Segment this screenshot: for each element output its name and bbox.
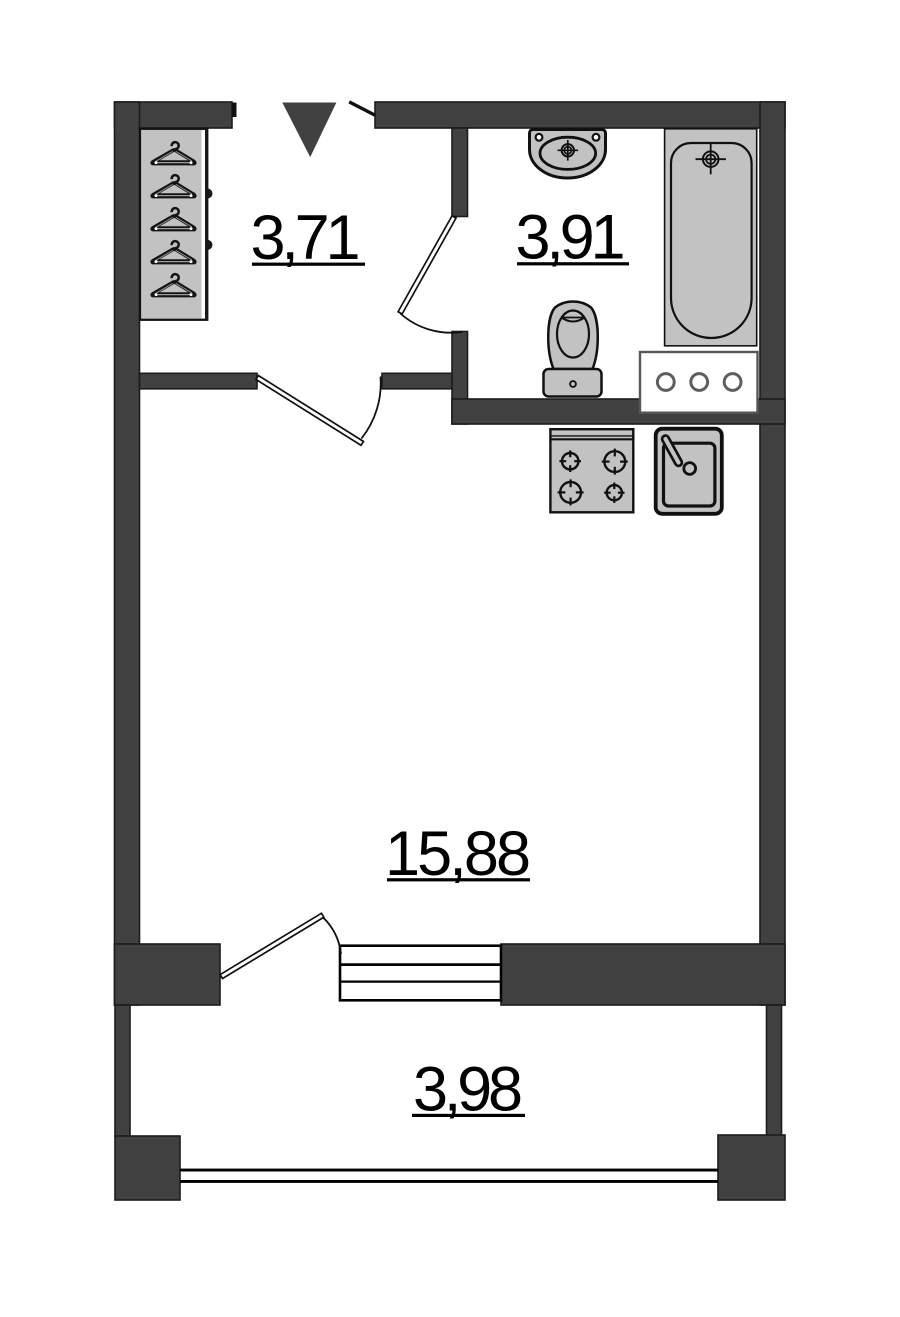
- svg-text:3,91: 3,91: [516, 203, 626, 273]
- svg-text:3,71: 3,71: [251, 203, 361, 273]
